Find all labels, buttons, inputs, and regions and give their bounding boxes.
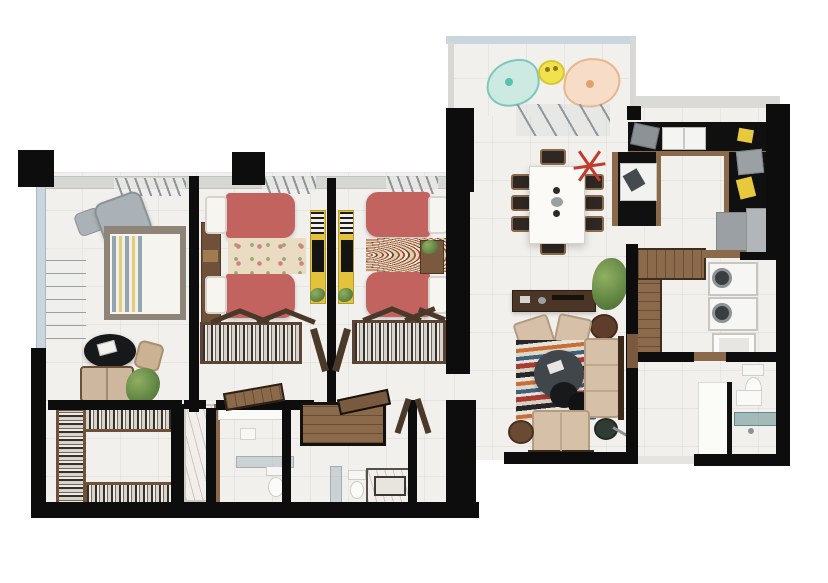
b2-study-nook-books [311,212,324,234]
bathc-partition [698,382,730,456]
balcony-pouf-yellow-dot2 [553,66,558,71]
hall-bottom-edge [636,456,696,464]
wall-bottom-left-wing [31,502,479,518]
kitchen-top-wall [634,96,780,108]
dining-chair-top [540,149,566,165]
door-laundry-lintel [694,352,726,361]
floor-plan [0,0,828,583]
b2-floral-rug [228,238,306,274]
b3-wardrobe [352,320,446,364]
wall-column-balcony [446,108,474,192]
master-bed-striped-blanket [112,236,142,312]
b3-bed1-blanket [366,192,430,237]
wall-closet-right [171,404,184,506]
b3-bed1-pillow [428,196,448,234]
wall-laundry-top [740,252,780,260]
batha-sink [240,428,256,440]
living-round-table-1 [508,420,534,444]
closet-left-unit [56,408,86,508]
balcony-top-window [446,36,636,44]
living-console-item3 [552,295,584,300]
dining-chair-left-2 [511,195,531,211]
door-living-lintel [627,334,638,368]
b2-bed2-pillow [205,276,227,314]
living-sofa-seam2 [586,390,618,392]
laundry-washer-door [712,268,732,288]
wall-bedroom3-right [446,192,470,374]
bathc-toilet-tank [742,364,764,376]
balcony-pouf-yellow-dot1 [545,67,550,72]
laundry-counter-h [636,248,706,280]
living-console-item2 [538,297,546,304]
wall-bathroom-v1 [206,408,216,504]
wall-bathroom-v2 [282,406,291,506]
laundry-counter-v [636,278,662,358]
balcony-pouf-teal-dot [505,78,513,86]
living-console-item1 [520,296,530,303]
bathc-faucet [748,428,754,434]
dining-table-plate2 [553,210,560,217]
wall-bottom-right [694,454,790,466]
bathc-partition-edge [727,382,732,456]
wall-laundry-bottom-a [632,352,694,362]
b2-study-nook-chair [312,240,324,272]
wall-corner-bottomright-leftwing [446,400,476,504]
wall-right-exterior-low [776,258,790,466]
living-ottoman [590,314,618,340]
master-glass-shelves [46,248,86,342]
wall-bedroom2-bedroom3 [327,178,336,408]
bathb-toilet-tank [348,470,366,480]
wall-right-exterior-top [766,104,790,260]
balcony-pouf-orange-dot [586,80,594,88]
b2-clothes-rack [262,176,316,194]
b3-study-nook-books [340,212,353,234]
b2-wardrobe [200,322,302,364]
living-loveseat-seam [560,413,562,451]
wall-left-lower [31,348,46,506]
kitchen-sink-divider [683,127,685,150]
bathc-glass-counter [734,412,780,426]
b2-bed1-pillow [205,196,227,234]
laundry-basin-inner [719,338,749,353]
wall-column-kitchen [627,106,641,120]
dining-chair-left-1 [511,174,531,190]
wall-laundry-bottom-b [726,352,780,362]
balcony-left-wall [448,42,454,110]
bathb-toilet-bowl [350,481,364,499]
laundry-dryer-door [712,303,732,323]
wall-column-topleft [18,150,54,187]
wall-column-topmid [232,152,265,185]
dining-table-plate1 [553,187,560,194]
wall-master-bedroom2 [189,176,199,412]
balcony-pouf-yellow [538,60,565,85]
left-window-wall [36,168,46,350]
dining-chair-right-2 [584,195,604,211]
living-sofa [584,338,620,418]
wall-closet-top [48,400,182,410]
bathb-tub-inner [374,476,406,496]
balcony-glass-railing [516,104,610,136]
wall-living-bottom [504,452,638,464]
bathc-sink-cabinet [736,390,762,406]
b2-bed1-blanket [226,193,295,238]
b2-desk-item [203,250,218,262]
bathb-glass-panel [330,466,342,506]
dining-table-bowl [551,197,563,207]
dining-chair-left-3 [511,216,531,232]
kitchen-gray-appliance [736,149,764,176]
dining-chair-right-3 [584,216,604,232]
wall-bathroom-v3 [408,400,417,504]
living-sofa-seam1 [586,364,618,366]
kitchen-yellow-item1 [737,128,754,143]
living-sofa-wood-back [618,336,624,420]
b3-study-nook-chair [341,240,353,272]
